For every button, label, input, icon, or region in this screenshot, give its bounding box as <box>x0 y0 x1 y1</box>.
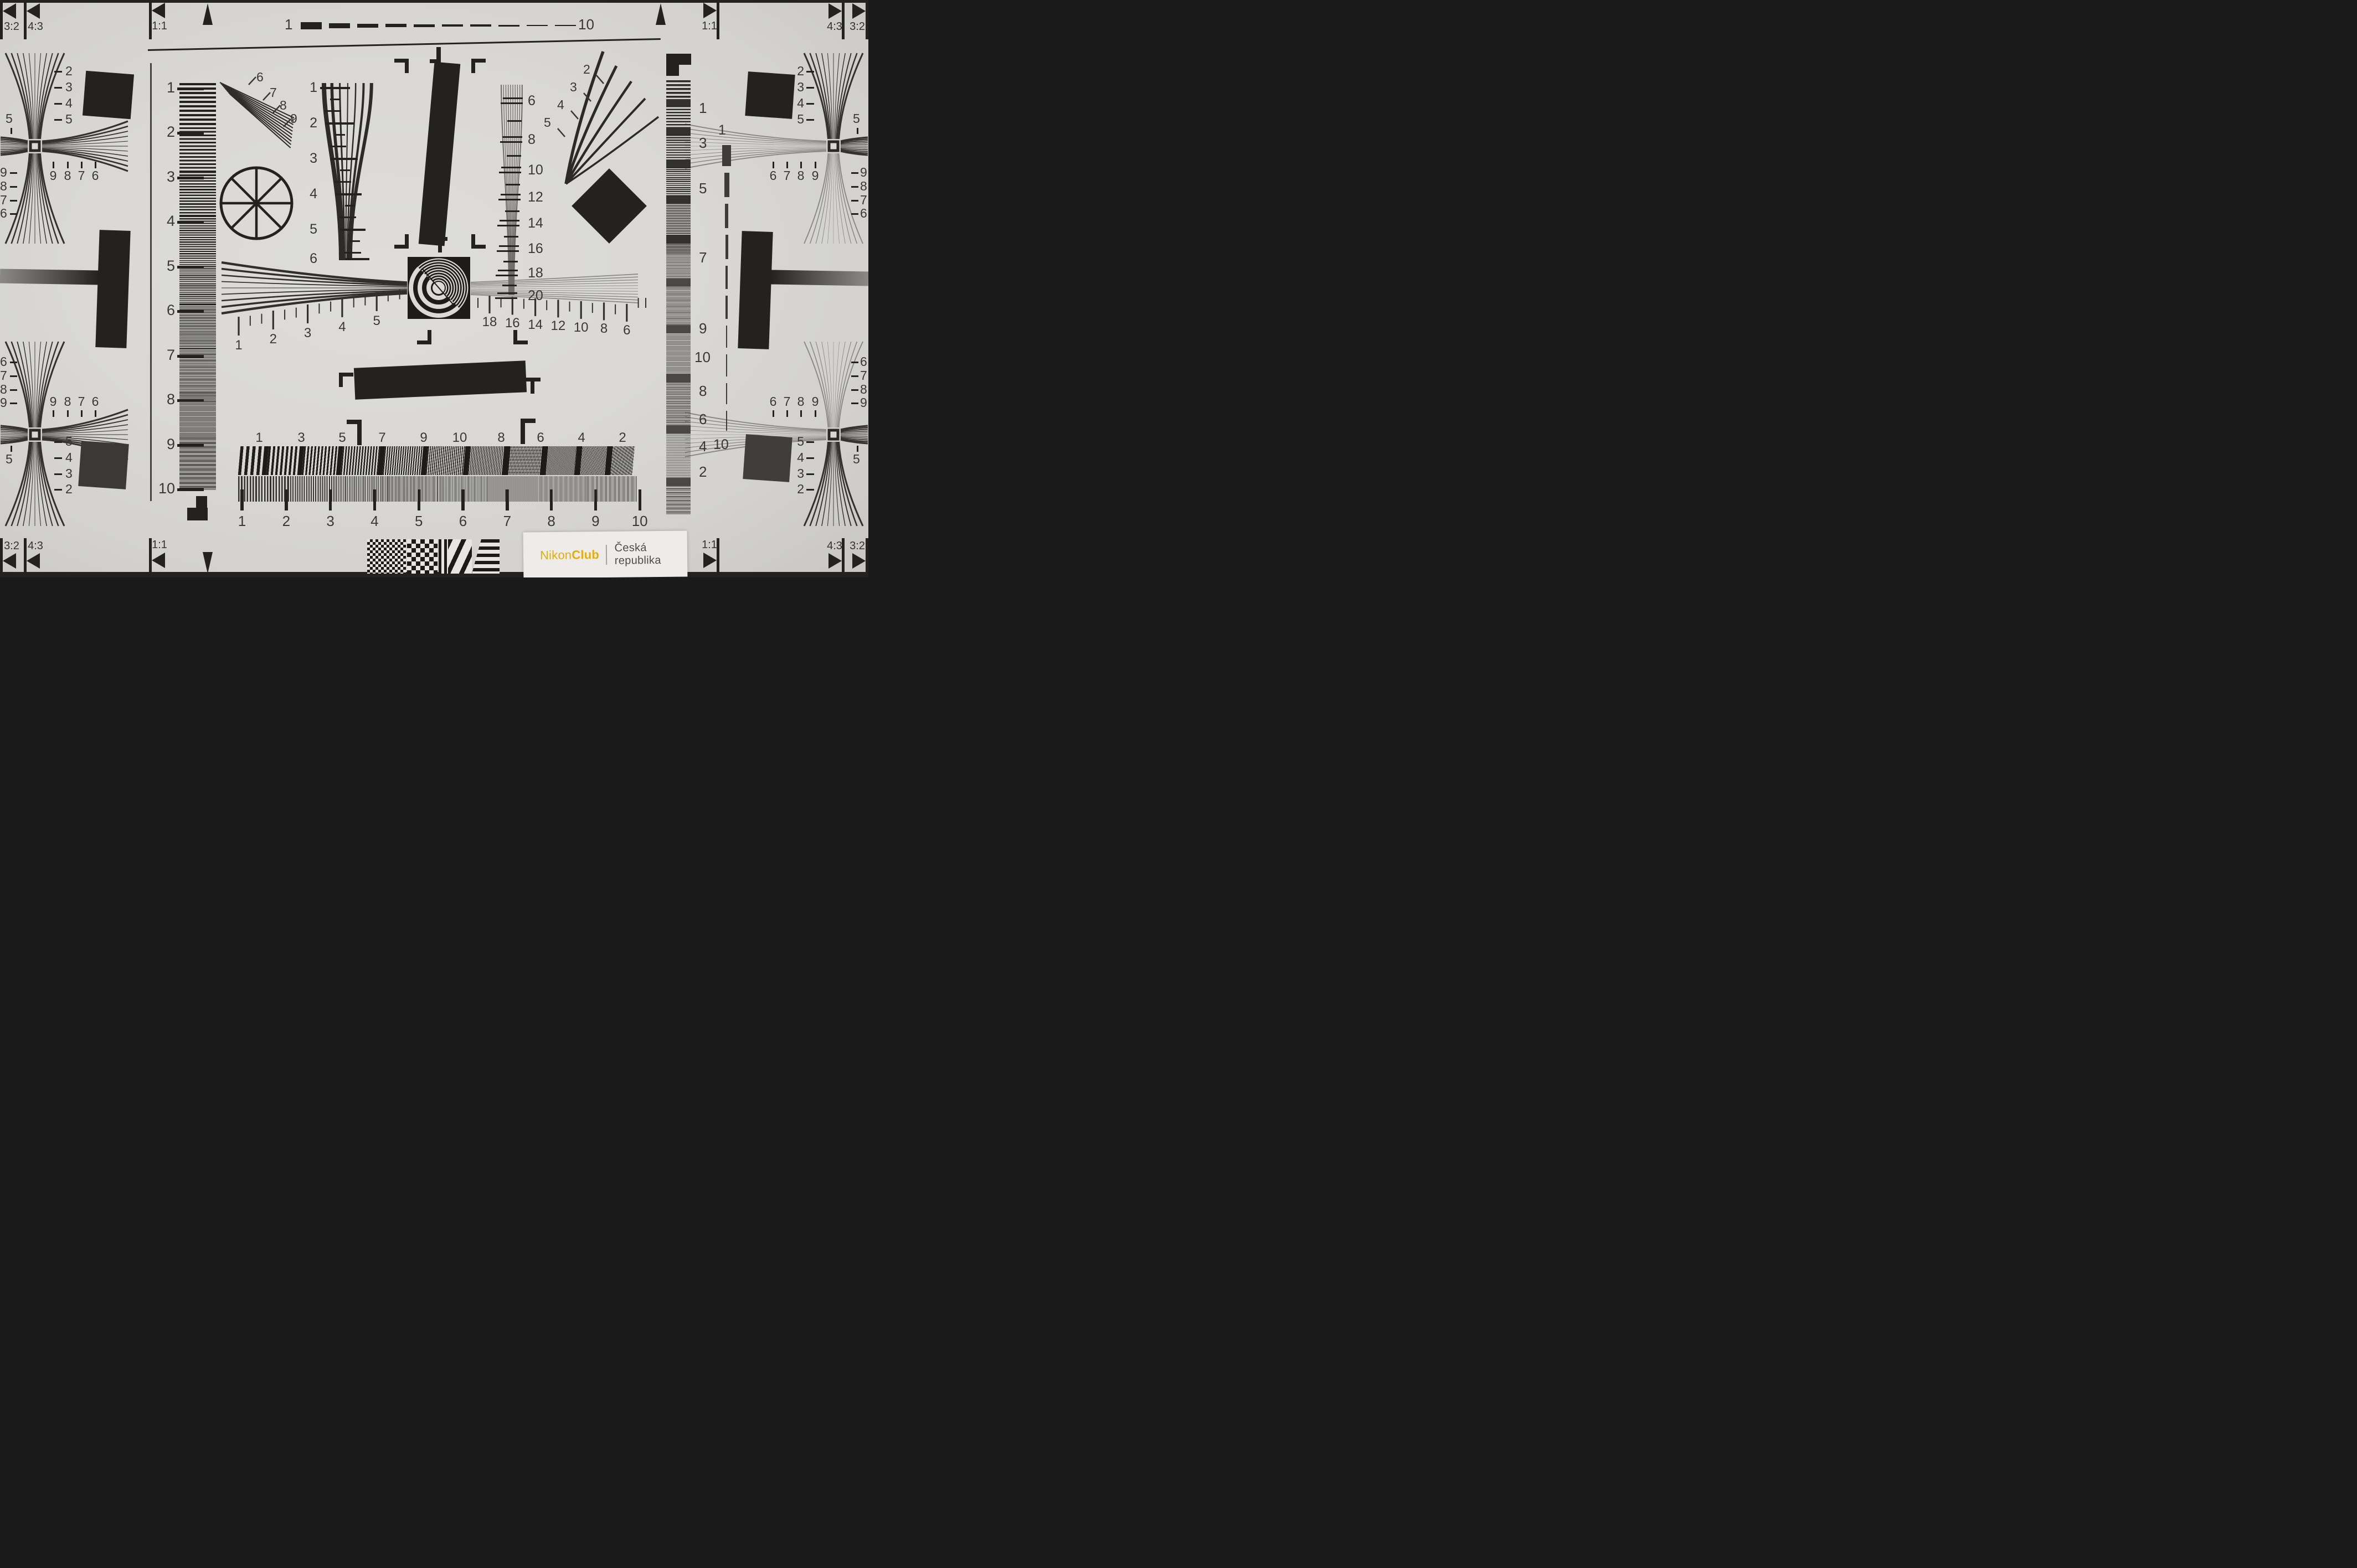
scale-dash <box>806 457 814 459</box>
scale-dash <box>344 252 361 254</box>
right-dash-scale-end: 10 <box>713 438 729 452</box>
bar-row-1 <box>238 446 639 475</box>
scale-number: 3 <box>273 152 317 166</box>
stripe-segment <box>580 446 608 475</box>
arrow-left-icon <box>27 553 40 569</box>
scale-number: 3 <box>699 136 707 150</box>
dash <box>470 24 491 27</box>
scale-number: 6 <box>602 324 652 337</box>
dash <box>442 24 463 27</box>
stripe-segment <box>426 446 466 475</box>
scale-number: 2 <box>65 483 73 496</box>
checkerboard-coarse <box>407 539 438 574</box>
obelisk-up-icon <box>656 3 666 25</box>
arrow-right-icon <box>852 553 866 569</box>
dash <box>725 296 727 319</box>
scale-dash <box>10 200 17 202</box>
ruler-tick <box>461 489 465 510</box>
scale-number: 3 <box>760 81 804 94</box>
dash <box>329 23 350 28</box>
scale-number: 8 <box>527 514 577 528</box>
tick <box>95 410 96 417</box>
tick <box>67 410 69 417</box>
scale-number: 3 <box>131 169 175 184</box>
bracket-mark <box>417 330 431 344</box>
fiducial-bar <box>866 3 868 39</box>
scale-number: 7 <box>860 369 867 382</box>
scale-dash <box>851 389 858 391</box>
scale-number: 8 <box>280 99 287 112</box>
rotated-bar <box>419 62 461 246</box>
tee-mark <box>525 378 541 381</box>
ratio-label-11: 1:1 <box>701 20 718 32</box>
ratio-label-11: 1:1 <box>701 539 718 550</box>
scale-number: 4 <box>273 187 317 201</box>
solid-block <box>666 278 691 286</box>
scale-dash <box>806 489 814 491</box>
ruler-tick <box>550 489 553 510</box>
scale-number: 5 <box>760 113 804 126</box>
scale-dash <box>177 310 204 313</box>
scale-dash <box>806 71 814 73</box>
test-chart-photo: 1234567891013579108642234559876987623455… <box>0 0 868 577</box>
ruler-tick <box>373 489 377 510</box>
tick <box>67 162 69 168</box>
scale-number: 2 <box>261 514 311 528</box>
solid-block <box>666 99 691 106</box>
scale-number: 5 <box>853 112 860 125</box>
scale-dash <box>325 122 354 125</box>
scale-dash <box>495 297 517 299</box>
scale-number: 5 <box>6 112 13 125</box>
scale-dash <box>335 193 362 195</box>
scale-number: 3 <box>760 467 804 480</box>
ratio-label-11: 1:1 <box>151 20 168 32</box>
tick <box>95 162 96 168</box>
bracket-mark <box>471 59 486 73</box>
tick <box>815 410 816 417</box>
solid-block <box>666 478 691 486</box>
scale-dash <box>10 213 17 215</box>
scale-number: 8 <box>0 383 7 396</box>
stripe-block <box>666 333 691 374</box>
scale-number: 5 <box>853 453 860 466</box>
scale-number: 6 <box>0 207 7 220</box>
scale-number: 6 <box>70 169 120 182</box>
scale-dash <box>498 270 518 271</box>
scale-dash <box>335 134 345 136</box>
top-dash-scale-end: 10 <box>578 17 594 32</box>
scale-number: 5 <box>699 181 707 195</box>
ratio-label-32: 3:2 <box>3 21 20 32</box>
dash <box>385 24 406 27</box>
scale-number: 9 <box>699 321 707 336</box>
stripe-segment <box>468 446 505 475</box>
tick <box>773 162 774 168</box>
scale-dash <box>497 250 519 252</box>
scale-number: 1 <box>131 80 175 95</box>
dash <box>725 204 729 228</box>
tick <box>800 162 802 168</box>
scale-dash <box>54 103 62 105</box>
scale-dash <box>507 120 522 122</box>
scale-dash <box>505 210 519 212</box>
scale-dash <box>806 119 814 121</box>
stripe-block <box>666 486 691 515</box>
scale-dash <box>506 184 520 185</box>
ratio-label-43: 4:3 <box>826 540 843 551</box>
scale-number: 4 <box>349 514 399 528</box>
scale-dash <box>851 375 858 377</box>
scale-number: 6 <box>528 94 536 108</box>
checkerboard-fine <box>367 539 406 574</box>
dash <box>722 145 731 166</box>
scale-number: 6 <box>256 71 264 84</box>
stripe-segment <box>383 446 424 475</box>
dash <box>357 24 378 28</box>
bracket-mark <box>471 234 486 249</box>
scale-number: 4 <box>65 451 73 464</box>
solid-block <box>666 325 691 333</box>
scale-dash <box>501 102 523 104</box>
scale-number: 2 <box>760 65 804 78</box>
obelisk-up-icon <box>203 3 213 25</box>
stripe-segment <box>610 446 635 475</box>
tick <box>773 410 774 417</box>
scale-number: 7 <box>270 86 277 99</box>
stripe-segment <box>266 446 300 475</box>
solid-block <box>666 160 691 167</box>
scale-dash <box>334 181 351 183</box>
arrow-left-icon <box>3 553 16 569</box>
scale-dash <box>806 103 814 105</box>
ratio-label-43: 4:3 <box>826 21 843 32</box>
ratio-label-43: 4:3 <box>27 540 44 551</box>
scale-number: 3 <box>65 81 73 94</box>
ruler-tick <box>418 489 421 510</box>
brand-nikon: Nikon <box>540 548 572 563</box>
vertical-bars <box>439 539 448 574</box>
scale-dash <box>320 87 350 89</box>
arrow-right-icon <box>703 553 717 568</box>
scale-dash <box>507 155 521 157</box>
scale-number: 2 <box>598 431 647 445</box>
scale-number: 3 <box>570 81 577 94</box>
stripe-segment <box>238 476 288 502</box>
scale-number: 10 <box>615 514 665 528</box>
stripe-block <box>666 80 691 99</box>
dash <box>724 173 729 197</box>
scale-dash <box>177 355 204 358</box>
scale-dash <box>503 261 518 262</box>
scale-dash <box>500 220 519 221</box>
scale-number: 6 <box>131 303 175 318</box>
stripe-block <box>666 243 691 278</box>
scale-dash <box>501 194 521 195</box>
scale-dash <box>177 444 204 447</box>
tick <box>786 410 788 417</box>
scale-dash <box>330 99 340 100</box>
scale-dash <box>502 136 522 138</box>
dash <box>726 383 727 404</box>
tick <box>800 410 802 417</box>
scale-number: 7 <box>482 514 532 528</box>
scale-dash <box>54 87 62 89</box>
ruler-tick <box>594 489 598 510</box>
scale-number: 1 <box>217 514 267 528</box>
stripe-block <box>666 203 691 235</box>
stripe-segment <box>508 446 543 475</box>
scale-number: 6 <box>699 412 707 426</box>
solid-block <box>666 374 691 382</box>
arrow-right-icon <box>852 3 866 19</box>
brand-club: Club <box>572 548 599 563</box>
dash <box>555 25 576 26</box>
scale-number: 9 <box>0 166 7 179</box>
scale-dash <box>499 245 519 247</box>
scale-number: 18 <box>528 266 543 280</box>
scale-dash <box>851 172 858 174</box>
dash <box>414 24 435 27</box>
scale-number: 8 <box>0 180 7 193</box>
arrow-left-icon <box>152 3 165 18</box>
scale-number: 7 <box>860 194 867 207</box>
scale-dash <box>350 240 360 242</box>
scale-dash <box>501 167 521 168</box>
tick <box>81 410 83 417</box>
scale-dash <box>503 97 523 99</box>
t-bar-arm <box>771 270 868 286</box>
scale-number: 6 <box>860 207 867 220</box>
scale-number: 9 <box>790 169 840 182</box>
ruler-tick <box>285 489 288 510</box>
tick <box>53 162 54 168</box>
scale-number: 8 <box>860 180 867 193</box>
nikonclub-card: NikonClub Česká republika <box>523 530 688 577</box>
scale-number: 16 <box>528 242 543 256</box>
stripe-segment <box>338 476 388 502</box>
black-square <box>78 441 129 489</box>
t-bar-stem <box>738 231 773 349</box>
right-dash-scale-start: 1 <box>718 123 726 137</box>
scale-number: 6 <box>860 355 867 368</box>
scale-dash <box>177 488 204 491</box>
tick <box>81 162 83 168</box>
ratio-label-11: 1:1 <box>151 539 168 550</box>
scale-number: 4 <box>760 451 804 464</box>
scale-number: 6 <box>0 355 7 368</box>
scale-number: 6 <box>273 252 317 266</box>
scale-number: 4 <box>65 97 73 110</box>
scale-number: 7 <box>131 348 175 363</box>
scale-number: 1 <box>699 101 707 115</box>
scale-number: 2 <box>699 465 707 479</box>
solid-block <box>666 128 691 135</box>
scale-number: 9 <box>790 395 840 408</box>
ratio-label-43: 4:3 <box>27 21 44 32</box>
stripe-segment <box>302 446 339 475</box>
bracket-mark <box>394 59 409 73</box>
scale-dash <box>330 146 346 147</box>
dash <box>726 326 728 348</box>
scale-dash <box>177 399 204 402</box>
step-flag <box>187 508 208 520</box>
stripe-block <box>666 106 691 128</box>
scale-number: 5 <box>760 435 804 448</box>
scale-dash <box>851 213 858 215</box>
scale-dash <box>54 119 62 121</box>
scale-dash <box>340 229 366 231</box>
scale-dash <box>54 457 62 459</box>
stripe-segment <box>545 446 577 475</box>
solid-block <box>666 425 691 434</box>
scale-dash <box>54 489 62 491</box>
scale-number: 5 <box>394 514 444 528</box>
scale-number: 4 <box>131 214 175 229</box>
horizontal-bars <box>472 539 500 574</box>
scale-dash <box>325 110 341 112</box>
tick <box>786 162 788 168</box>
brand-region: Česká republika <box>614 541 687 567</box>
scale-number: 6 <box>438 514 488 528</box>
rotated-bar <box>354 360 527 399</box>
scale-dash <box>500 141 522 143</box>
dash <box>301 22 322 29</box>
scale-dash <box>339 216 356 218</box>
scale-number: 8 <box>131 392 175 407</box>
tick <box>53 410 54 417</box>
ruler-tick <box>329 489 332 510</box>
scale-dash <box>496 275 518 276</box>
scale-dash <box>10 186 17 188</box>
stripe-segment <box>341 446 380 475</box>
stripe-segment <box>238 446 265 475</box>
scale-number: 4 <box>699 439 707 453</box>
dash <box>725 266 728 289</box>
stripe-block <box>666 434 691 478</box>
scale-number: 9 <box>131 437 175 452</box>
scale-number: 2 <box>760 483 804 496</box>
dash <box>725 235 728 259</box>
dash <box>498 25 519 27</box>
scale-dash <box>851 362 858 363</box>
scale-dash <box>177 87 204 90</box>
stripe-segment <box>388 476 438 502</box>
stripe-block <box>666 286 691 325</box>
scale-dash <box>806 473 814 475</box>
scale-dash <box>497 225 519 226</box>
bracket-mark <box>394 234 409 249</box>
arrow-left-icon <box>3 3 16 19</box>
scale-number: 5 <box>544 116 551 129</box>
scale-number: 6 <box>70 395 120 408</box>
scale-dash <box>502 285 517 286</box>
dash <box>527 25 548 27</box>
diamond-square <box>572 168 647 244</box>
chart-decorations: 1234567891013579108642234559876987623455… <box>0 0 868 577</box>
stripe-block <box>666 382 691 425</box>
scale-dash <box>497 292 517 294</box>
bracket-mark <box>513 330 528 344</box>
tee-mark <box>433 237 447 241</box>
scale-dash <box>330 158 358 160</box>
arrow-right-icon <box>828 3 842 19</box>
scale-dash <box>10 172 17 174</box>
brand-divider <box>606 544 607 564</box>
stripe-block <box>666 135 691 160</box>
scale-dash <box>54 71 62 73</box>
scale-dash <box>177 132 204 135</box>
scale-dash <box>177 266 204 269</box>
scale-number: 9 <box>860 166 867 179</box>
scale-number: 4 <box>557 99 564 111</box>
scale-number: 9 <box>570 514 620 528</box>
scale-number: 9 <box>290 112 297 125</box>
obelisk-down-icon <box>203 552 213 574</box>
diagonal-bars <box>448 539 472 574</box>
scale-dash <box>851 403 858 404</box>
tick <box>857 128 858 134</box>
step-flag <box>666 54 691 65</box>
tick <box>11 128 12 134</box>
scale-number: 10 <box>528 163 543 177</box>
scale-number: 5 <box>65 435 73 448</box>
scale-dash <box>806 441 814 443</box>
scale-number: 12 <box>528 190 543 204</box>
scale-dash <box>499 172 521 173</box>
scale-number: 5 <box>131 259 175 274</box>
scale-dash <box>10 362 17 363</box>
arrow-right-icon <box>703 3 717 18</box>
scale-dash <box>806 87 814 89</box>
scale-dash <box>345 258 369 260</box>
scale-number: 9 <box>860 396 867 409</box>
tick <box>857 446 858 452</box>
dash <box>726 411 727 431</box>
dash <box>726 354 727 376</box>
scale-dash <box>10 389 17 391</box>
step-flag <box>196 496 207 508</box>
scale-number: 14 <box>528 216 543 230</box>
stripe-segment <box>487 476 537 502</box>
scale-dash <box>177 221 204 224</box>
scale-dash <box>498 199 521 200</box>
scale-number: 3 <box>65 467 73 480</box>
stripe-segment <box>537 476 587 502</box>
scale-number: 7 <box>699 250 707 265</box>
solid-block <box>666 196 691 203</box>
top-dash-scale-start: 1 <box>285 17 292 32</box>
t-bar-arm <box>0 269 99 285</box>
stripe-block <box>666 167 691 196</box>
slanted-line <box>148 38 661 51</box>
tee-mark <box>438 241 442 252</box>
scale-dash <box>10 375 17 377</box>
scale-number: 2 <box>583 63 590 76</box>
tick <box>11 446 12 452</box>
arrow-left-icon <box>27 3 40 19</box>
scale-dash <box>851 186 858 188</box>
fiducial-bar <box>866 538 868 574</box>
scale-number: 1 <box>273 81 317 95</box>
ruler-tick <box>639 489 642 510</box>
scale-number: 3 <box>306 514 356 528</box>
frame-edge-top <box>0 0 868 3</box>
arrow-right-icon <box>828 553 842 569</box>
step-flag <box>666 65 679 76</box>
scale-number: 5 <box>273 223 317 236</box>
ruler-tick <box>506 489 509 510</box>
